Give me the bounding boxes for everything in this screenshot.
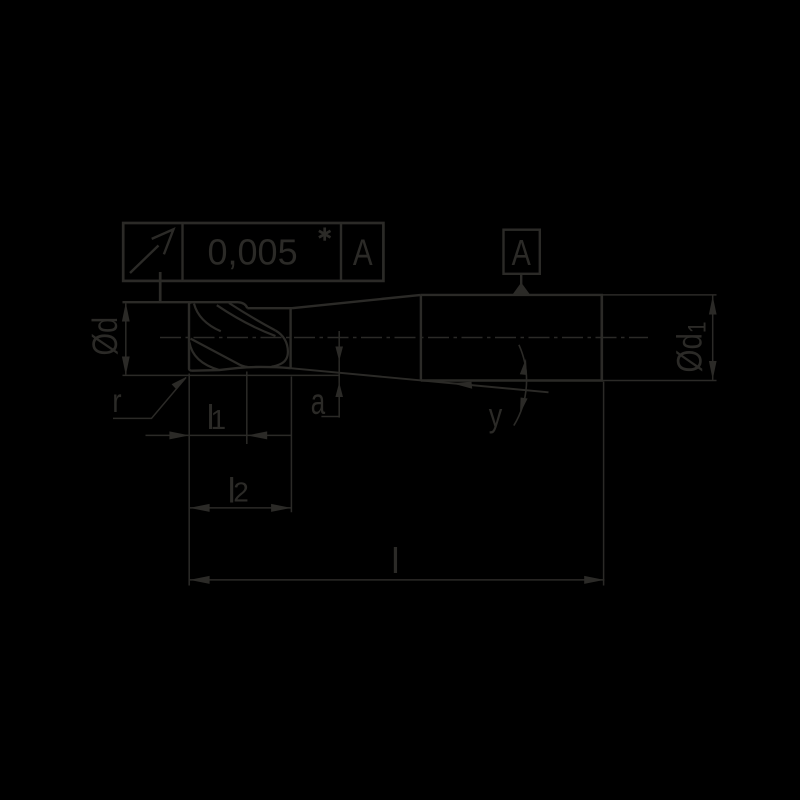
svg-text:r: r: [112, 383, 121, 420]
svg-text:Ød: Ød: [85, 317, 124, 356]
svg-text:1: 1: [211, 404, 227, 435]
svg-text:A: A: [512, 232, 531, 273]
svg-text:A: A: [353, 233, 373, 274]
svg-text:y: y: [489, 398, 503, 434]
svg-text:0,005: 0,005: [208, 232, 298, 273]
svg-text:2: 2: [233, 477, 249, 508]
svg-text:a: a: [311, 380, 326, 422]
svg-text:l: l: [391, 540, 399, 581]
